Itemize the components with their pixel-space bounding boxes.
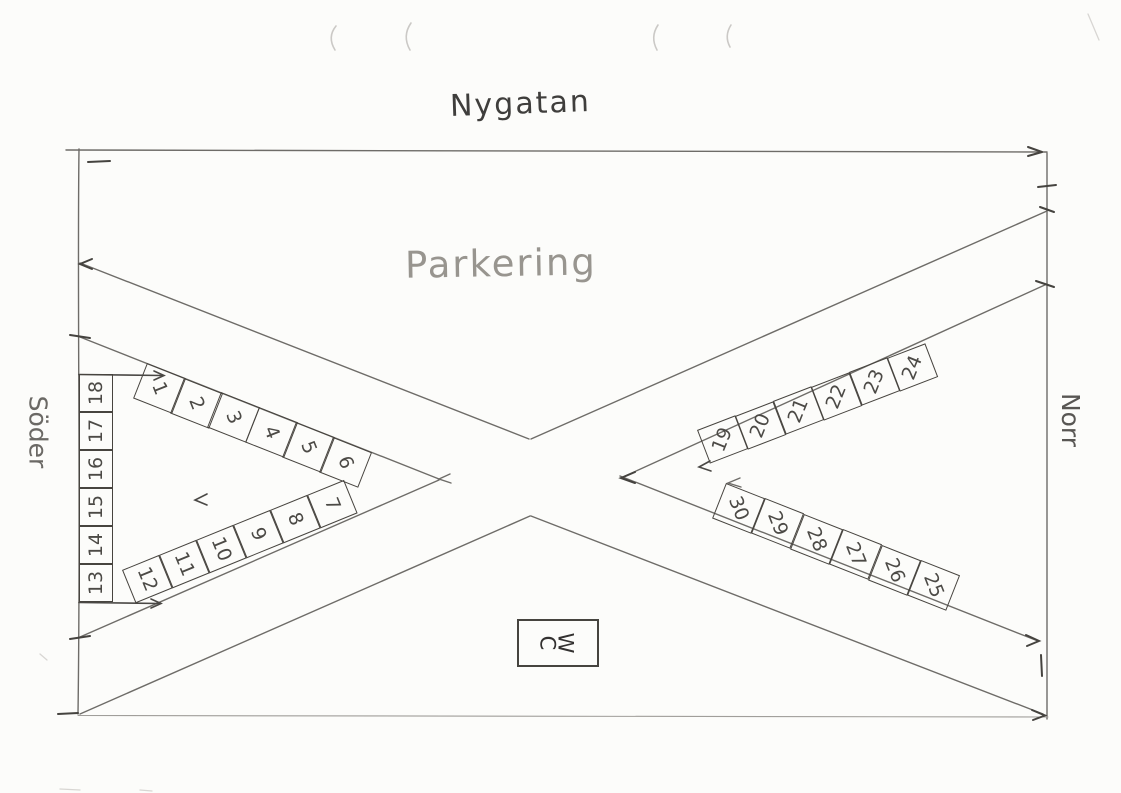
stall-17: 17 bbox=[79, 412, 113, 450]
wc-label: CW bbox=[540, 631, 575, 655]
stall-number: 9 bbox=[246, 524, 271, 544]
street-label: Nygatan bbox=[449, 83, 620, 124]
stall-number: 23 bbox=[860, 366, 889, 397]
wc-box: CW bbox=[517, 619, 599, 667]
direction-label-south: Söder bbox=[27, 385, 53, 480]
stall-number: 21 bbox=[784, 395, 813, 426]
stall-number: 29 bbox=[763, 508, 792, 539]
stall-number: 20 bbox=[746, 410, 775, 441]
stall-number: 11 bbox=[170, 549, 200, 580]
stall-number: 26 bbox=[880, 555, 909, 586]
stall-number: 22 bbox=[822, 381, 851, 412]
stall-number: 2 bbox=[184, 394, 209, 413]
stall-number: 25 bbox=[919, 570, 948, 601]
stall-number: 3 bbox=[221, 408, 246, 427]
stall-number: 19 bbox=[708, 424, 737, 455]
stall-number: 16 bbox=[85, 457, 107, 481]
hand-drawn-parking-map: Nygatan Parkering Söder Norr 1 2 3 4 5 6… bbox=[0, 0, 1121, 793]
stall-number: 14 bbox=[85, 533, 107, 557]
stall-number: 13 bbox=[85, 571, 107, 595]
stall-number: 17 bbox=[85, 419, 107, 443]
stall-number: 4 bbox=[259, 423, 284, 442]
stall-number: 18 bbox=[85, 381, 107, 405]
stall-number: 5 bbox=[296, 438, 321, 457]
stall-number: 10 bbox=[207, 534, 237, 565]
stall-15: 15 bbox=[79, 488, 113, 526]
stall-number: 28 bbox=[802, 524, 831, 555]
parking-area-label: Parkering bbox=[405, 240, 606, 286]
stall-number: 12 bbox=[133, 564, 163, 595]
stall-16: 16 bbox=[79, 450, 113, 488]
stall-number: 6 bbox=[333, 453, 358, 472]
stall-13: 13 bbox=[79, 564, 113, 602]
stall-number: 30 bbox=[724, 493, 753, 524]
stall-18: 18 bbox=[79, 374, 113, 412]
stall-14: 14 bbox=[79, 526, 113, 564]
stall-number: 15 bbox=[85, 495, 107, 519]
stall-number: 27 bbox=[841, 539, 870, 570]
stall-number: 8 bbox=[283, 509, 308, 529]
stall-number: 24 bbox=[898, 352, 927, 383]
stall-number: 1 bbox=[147, 379, 172, 398]
direction-label-north: Norr bbox=[1059, 384, 1085, 456]
stall-number: 7 bbox=[320, 494, 345, 514]
